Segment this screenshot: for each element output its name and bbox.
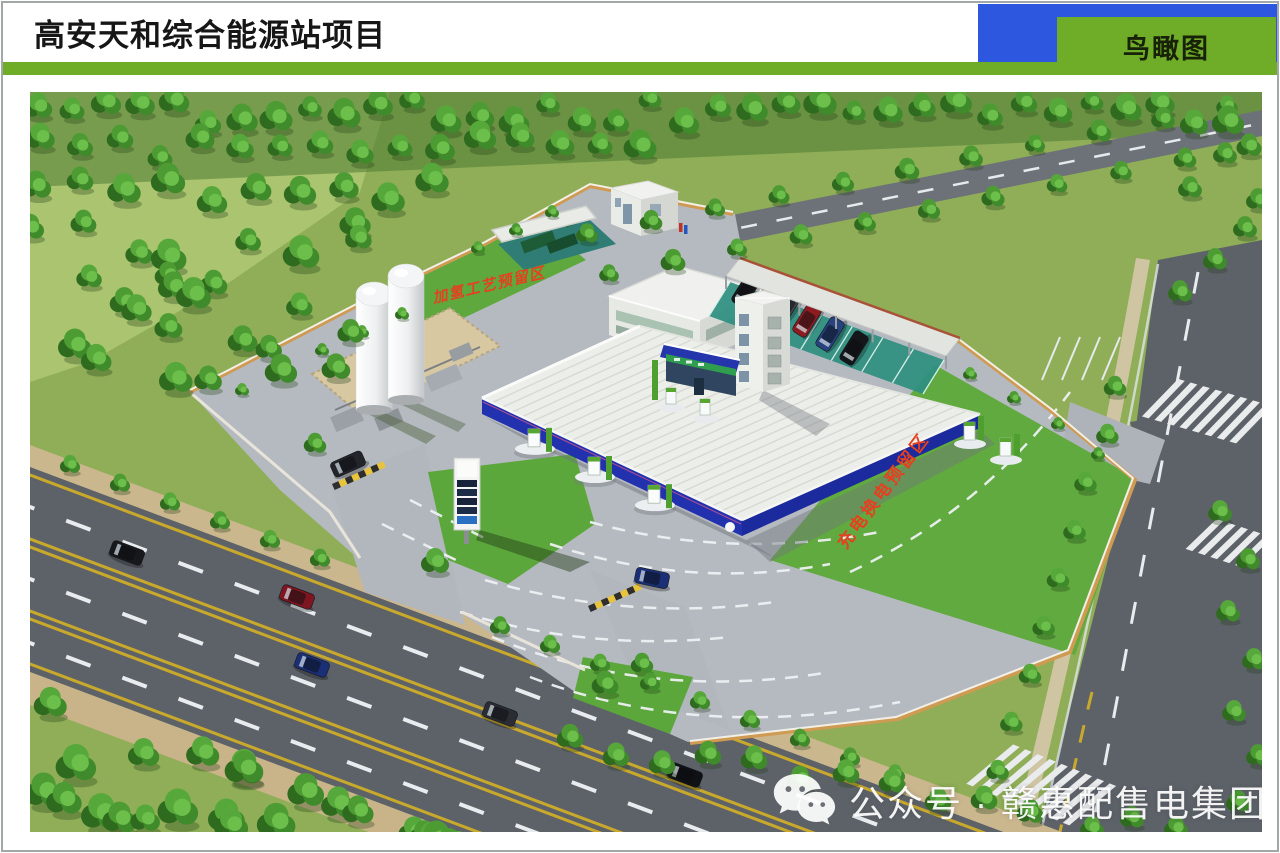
watermark: 公众号 · 赣惠配售电集团 [772, 772, 1262, 829]
view-tag-label: 鸟瞰图 [1123, 27, 1210, 66]
person-figure [679, 223, 683, 232]
lng-tank-1 [356, 294, 392, 410]
page-title: 高安天和综合能源站项目 [34, 10, 386, 55]
watermark-text: 公众号 · 赣惠配售电集团 [849, 775, 1262, 827]
view-tag-box: 鸟瞰图 [1057, 17, 1276, 75]
wechat-icon [772, 772, 836, 829]
lng-tank-2 [388, 276, 424, 400]
person-figure [684, 225, 688, 234]
birdseye-rendering: 加氢工艺预留区 充电换电预留区 公众号 · 赣惠配售电集团 [30, 92, 1262, 832]
slide-page: 高安天和综合能源站项目 鸟瞰图 [0, 0, 1280, 853]
scene-svg: 加氢工艺预留区 充电换电预留区 [30, 92, 1262, 832]
